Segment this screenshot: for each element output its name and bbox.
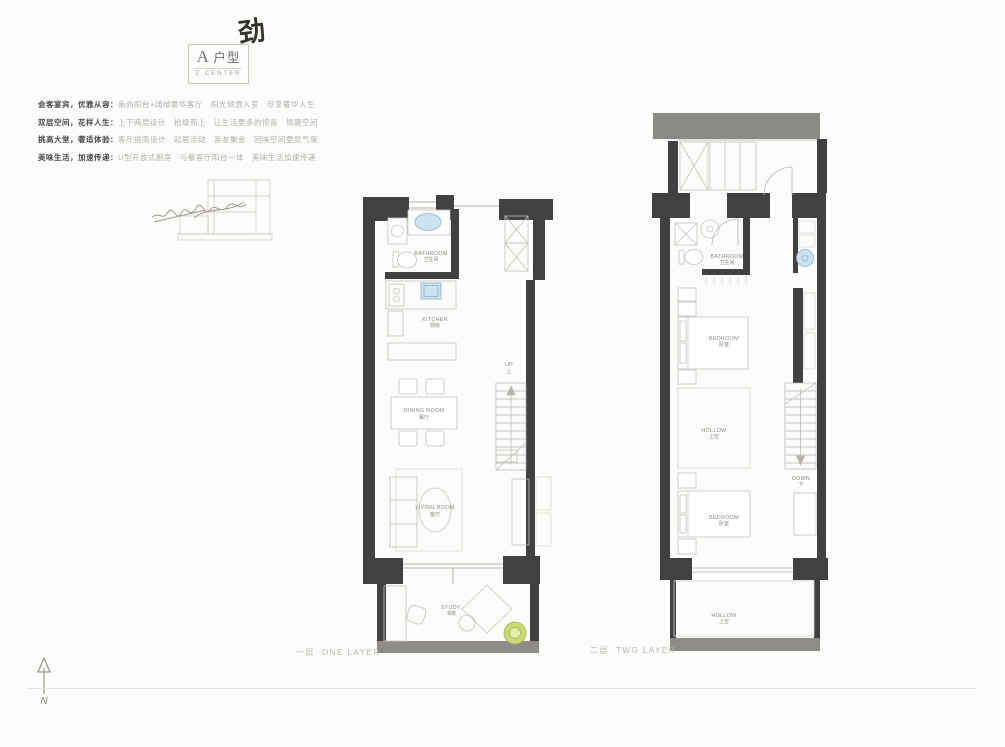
toilet-bowl bbox=[685, 250, 703, 265]
hollow1-label-zh: 上空 bbox=[709, 433, 719, 440]
bed bbox=[678, 491, 750, 537]
title-letter: A bbox=[197, 47, 209, 66]
faucet-icon bbox=[423, 213, 425, 215]
north-compass: N bbox=[24, 654, 64, 706]
plan-one: BATHROOM 卫生间 KITCHEN 厨房 DINING ROOM 餐厅 U… bbox=[363, 193, 558, 660]
tall-cabinet bbox=[388, 311, 403, 336]
hollow2-label-zh: 上空 bbox=[719, 618, 729, 625]
title-block: A 户型 Z CENTER bbox=[188, 44, 249, 84]
description-body: 客厅挑高设计 起居活动 亲友聚会 回味空间更显气度 bbox=[118, 135, 318, 144]
dining-chair bbox=[426, 379, 444, 394]
plan-two-top-wall bbox=[653, 113, 820, 139]
bathroom-sink bbox=[415, 214, 441, 231]
bay-window bbox=[536, 513, 551, 546]
desk bbox=[794, 493, 816, 535]
dining-chair bbox=[426, 431, 444, 446]
bedroom1-label-zh: 卧室 bbox=[719, 341, 729, 348]
plan-two-caption: 二层TWO LAYER bbox=[590, 645, 676, 656]
floorplan-page: 劲 A 户型 Z CENTER 会客宴宾，优雅从容：南向阳台+阔绰豪华客厅 阳光… bbox=[0, 0, 1005, 747]
plan-two-bottom-wall bbox=[670, 638, 820, 651]
description-head: 挑高大堂，奢适体验： bbox=[38, 135, 118, 144]
plan-two-caption-zh: 二层 bbox=[590, 646, 609, 655]
description-line: 双层空间，花样人生：上下两层设计 拾级而上 让生活更多的惊喜 情趣空间 bbox=[38, 114, 318, 132]
stove bbox=[389, 284, 404, 306]
description-head: 会客宴宾，优雅从容： bbox=[38, 100, 118, 109]
pillow bbox=[680, 515, 686, 533]
washing-machine-drum bbox=[392, 225, 404, 237]
sketch-building bbox=[178, 180, 272, 240]
plan-two-caption-en: TWO LAYER bbox=[616, 646, 676, 655]
description-block: 会客宴宾，优雅从容：南向阳台+阔绰豪华客厅 阳光倾洒入室 尽享奢华人生 双层空间… bbox=[38, 96, 318, 166]
nightstand bbox=[678, 288, 696, 301]
plant-center bbox=[510, 628, 521, 639]
title-subtitle: Z CENTER bbox=[189, 71, 248, 77]
description-line: 挑高大堂，奢适体验：客厅挑高设计 起居活动 亲友聚会 回味空间更显气度 bbox=[38, 131, 318, 149]
kitchen-label-zh: 厨房 bbox=[430, 322, 440, 329]
description-head: 双层空间，花样人生： bbox=[38, 118, 118, 127]
pillow bbox=[680, 343, 686, 363]
study-table bbox=[462, 585, 512, 633]
plan-two-sill bbox=[692, 568, 793, 572]
bedroom2-furniture bbox=[678, 473, 816, 554]
description-body: 南向阳台+阔绰豪华客厅 阳光倾洒入室 尽享奢华人生 bbox=[118, 100, 315, 109]
stair-arrow-up-icon bbox=[507, 386, 515, 395]
down-label-zh: 下 bbox=[798, 482, 803, 488]
description-body: 上下两层设计 拾级而上 让生活更多的惊喜 情趣空间 bbox=[118, 118, 318, 127]
round-basin bbox=[797, 250, 814, 267]
bathroom-label-zh: 卫生间 bbox=[423, 256, 438, 263]
bedroom2-label-zh: 卧室 bbox=[719, 520, 729, 527]
description-line: 美味生活，加速传递：U型开放式厨房 与餐客厅阳台一体 美味生活加速传递 bbox=[38, 149, 318, 167]
living-label-zh: 客厅 bbox=[430, 511, 440, 518]
staircase-up bbox=[496, 383, 526, 470]
title-divider bbox=[195, 68, 242, 69]
plan-one-labels: BATHROOM 卫生间 KITCHEN 厨房 DINING ROOM 餐厅 U… bbox=[404, 251, 513, 617]
dining-chair bbox=[399, 431, 417, 446]
nightstand bbox=[678, 473, 696, 488]
nightstand bbox=[678, 370, 696, 384]
faucet-icon bbox=[431, 213, 433, 215]
pillow bbox=[680, 495, 686, 513]
up-label: UP bbox=[505, 362, 513, 368]
threshold-hatch bbox=[706, 276, 746, 283]
closet bbox=[680, 142, 756, 190]
description-head: 美味生活，加速传递： bbox=[38, 153, 118, 162]
burner-icon bbox=[394, 288, 400, 294]
nightstand bbox=[678, 539, 696, 554]
study-chair bbox=[406, 604, 427, 625]
bathroom-label-zh: 卫生间 bbox=[719, 259, 734, 266]
bathroom-fixtures bbox=[388, 210, 450, 268]
hollow2-outline bbox=[674, 581, 814, 636]
title-suffix: 户型 bbox=[213, 51, 240, 65]
bottom-rule bbox=[28, 688, 976, 689]
staircase-down bbox=[785, 383, 816, 469]
description-line: 会客宴宾，优雅从容：南向阳台+阔绰豪华客厅 阳光倾洒入室 尽享奢华人生 bbox=[38, 96, 318, 114]
sofa bbox=[390, 477, 417, 547]
building-sketch bbox=[148, 166, 283, 254]
kitchen-island bbox=[388, 343, 456, 360]
description-body: U型开放式厨房 与餐客厅阳台一体 美味生活加速传递 bbox=[118, 153, 316, 162]
plan-two-walls bbox=[652, 139, 828, 638]
dining-label-zh: 餐厅 bbox=[419, 414, 429, 421]
study-stool bbox=[459, 615, 475, 631]
terrace-door bbox=[764, 167, 792, 195]
plan-one-caption-en: ONE LAYER bbox=[322, 648, 381, 657]
wardrobe bbox=[505, 216, 528, 271]
toilet-tank bbox=[679, 250, 684, 264]
burner-icon bbox=[394, 296, 400, 302]
north-label: N bbox=[40, 696, 48, 706]
plan-one-caption-zh: 一层 bbox=[296, 648, 315, 657]
stair-arrow-down-icon bbox=[797, 456, 805, 465]
living-label: LIVING ROOM bbox=[415, 505, 454, 511]
up-label-zh: 上 bbox=[506, 368, 511, 375]
pillow bbox=[680, 321, 686, 341]
plan-one-caption: 一层ONE LAYER bbox=[296, 647, 381, 658]
dining-label: DINING ROOM bbox=[404, 408, 445, 414]
study-desk bbox=[384, 586, 406, 641]
page-title: A 户型 bbox=[189, 49, 248, 66]
bed bbox=[678, 317, 748, 369]
dining-chair bbox=[399, 379, 417, 394]
basin-drain-icon bbox=[707, 226, 713, 232]
bay-window bbox=[536, 477, 551, 510]
study-label-zh: 书房 bbox=[446, 610, 456, 617]
plan-two: BATHROOM 卫生间 BEDROOM 卧室 HOLLOW 上空 DOWN 下… bbox=[648, 111, 840, 656]
nightstand bbox=[678, 302, 696, 316]
